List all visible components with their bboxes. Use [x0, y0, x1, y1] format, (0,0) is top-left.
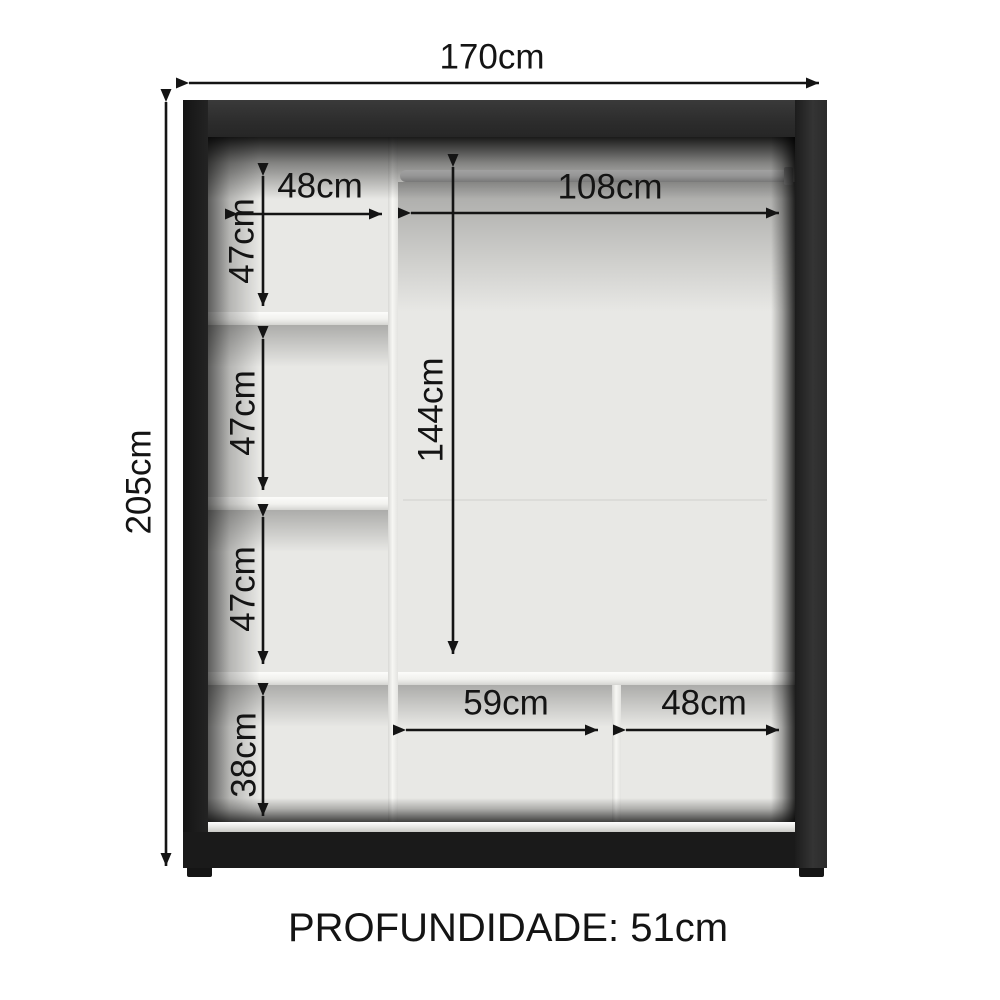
- dim-label-shelf-gap-2: 47cm: [226, 370, 261, 456]
- depth-caption: PROFUNDIDADE: 51cm: [288, 908, 728, 948]
- left-foot: [187, 868, 212, 877]
- dim-label-shelf-gap-1: 47cm: [225, 198, 260, 284]
- dim-label-top-shelf-width: 48cm: [277, 169, 363, 204]
- dim-label-total-height: 205cm: [122, 429, 157, 534]
- dim-label-bottom-right-width: 48cm: [661, 686, 747, 721]
- wardrobe-frame: [183, 100, 827, 868]
- dim-label-hanging-width: 108cm: [557, 170, 662, 205]
- dim-label-hanging-height: 144cm: [414, 357, 449, 462]
- dim-label-bottom-middle-width: 59cm: [463, 686, 549, 721]
- right-foot: [799, 868, 824, 877]
- frame-right-band: [795, 100, 827, 868]
- dim-label-shelf-gap-3: 47cm: [226, 546, 261, 632]
- left-vertical-partition: [388, 137, 398, 822]
- dim-label-bottom-gap: 38cm: [227, 712, 262, 798]
- frame-top-band: [183, 100, 827, 137]
- diagram-canvas: 170cm 205cm 48cm 108cm 47cm 47cm 47cm 14…: [0, 0, 1000, 1000]
- dim-label-total-width: 170cm: [439, 40, 544, 75]
- back-panel-seam: [403, 499, 767, 501]
- frame-left-band: [183, 100, 208, 868]
- interior-right-shadow: [771, 137, 795, 822]
- interior-bottom-shadow: [208, 798, 795, 822]
- frame-bottom-band: [183, 832, 827, 868]
- plinth-strip: [208, 822, 795, 832]
